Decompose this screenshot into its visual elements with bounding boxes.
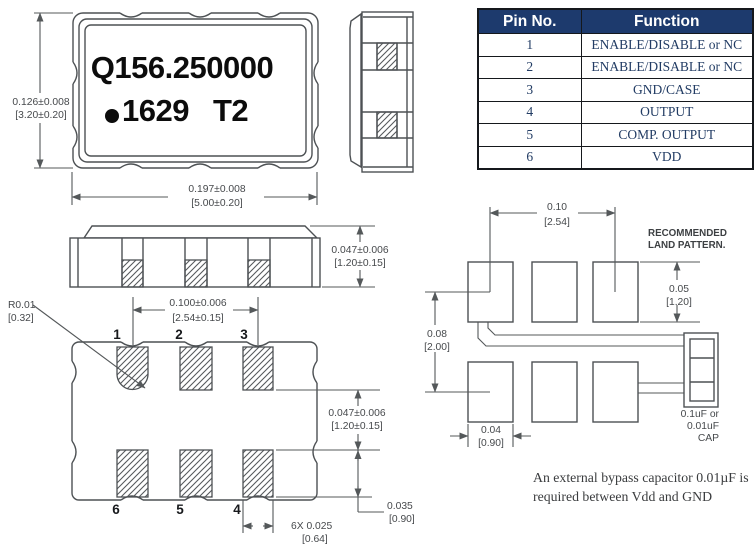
pin-label-6: 6 xyxy=(112,502,120,517)
function-cell: ENABLE/DISABLE or NC xyxy=(581,34,753,57)
pad-height-dim-in: 0.035 xyxy=(387,501,413,512)
table-header-row: Pin No. Function xyxy=(478,9,753,34)
pad-2 xyxy=(180,347,212,390)
top-view-height-dim-in: 0.126±0.008 xyxy=(12,97,69,108)
pin-cell: 1 xyxy=(478,34,581,57)
table-row: 6 VDD xyxy=(478,146,753,169)
pad-4 xyxy=(243,450,273,497)
function-header: Function xyxy=(581,9,753,34)
bottom-view: 1 2 3 6 5 4 R0.01 [0.32] 0.100±0.006 [2.… xyxy=(8,297,415,545)
cap-label-line3: CAP xyxy=(698,433,719,444)
function-cell: ENABLE/DISABLE or NC xyxy=(581,56,753,79)
pin1-indicator-dot xyxy=(105,109,119,123)
pin-label-1: 1 xyxy=(113,327,121,342)
table-row: 2 ENABLE/DISABLE or NC xyxy=(478,56,753,79)
pad-pitch-dim-in: 0.100±0.006 xyxy=(169,298,226,309)
pin-cell: 5 xyxy=(478,124,581,147)
land-row-gap-dim-mm: [2.00] xyxy=(424,342,450,353)
pad-pitch-dim-mm: [2.54±0.15] xyxy=(172,313,224,324)
row-gap-dim-in: 0.047±0.006 xyxy=(328,408,385,419)
front-pad-hatch xyxy=(248,260,270,287)
land-pad xyxy=(593,362,638,422)
pad-height-dim-mm: [0.90] xyxy=(389,514,415,525)
front-view: 0.047±0.006 [1.20±0.15] xyxy=(70,226,389,287)
function-cell: GND/CASE xyxy=(581,79,753,102)
pin-cell: 3 xyxy=(478,79,581,102)
note-line1: An external bypass capacitor 0.01µF is xyxy=(533,470,749,485)
land-pad-width-dim-in: 0.04 xyxy=(481,425,501,436)
cap-label-line1: 0.1uF or xyxy=(681,409,720,420)
top-view-width-dim-mm: [5.00±0.20] xyxy=(191,198,243,209)
bypass-cap-body xyxy=(690,339,714,401)
pad-width-dim-mm: [0.64] xyxy=(302,534,328,545)
marking-rev: T2 xyxy=(213,93,248,128)
land-pad-height-dim-mm: [1.20] xyxy=(666,297,692,308)
pin-label-5: 5 xyxy=(176,502,184,517)
side-view xyxy=(350,12,413,172)
land-pad xyxy=(532,262,577,322)
land-pad-width-dim-mm: [0.90] xyxy=(478,438,504,449)
land-pad-height-dim-in: 0.05 xyxy=(669,284,689,295)
top-view: Q156.250000 1629 T2 0.126±0.008 [3.20±0.… xyxy=(12,11,320,209)
front-view-thickness-dim-mm: [1.20±0.15] xyxy=(334,258,386,269)
function-cell: VDD xyxy=(581,146,753,169)
pad-5 xyxy=(180,450,212,497)
pad-1 xyxy=(117,347,148,389)
land-row-gap-dim-in: 0.08 xyxy=(427,329,447,340)
pad-3 xyxy=(243,347,273,390)
pad-width-dim-in: 6X 0.025 xyxy=(291,521,332,532)
land-pitch-dim-mm: [2.54] xyxy=(544,217,570,228)
pin-cell: 6 xyxy=(478,146,581,169)
note-line2: required between Vdd and GND xyxy=(533,489,712,504)
datasheet-mechanical-drawing-page: Q156.250000 1629 T2 0.126±0.008 [3.20±0.… xyxy=(0,0,754,554)
pin-label-3: 3 xyxy=(240,327,248,342)
table-row: 4 OUTPUT xyxy=(478,101,753,124)
table-row: 1 ENABLE/DISABLE or NC xyxy=(478,34,753,57)
pin-label-2: 2 xyxy=(175,327,183,342)
land-pattern-title-line1: RECOMMENDED xyxy=(648,228,727,239)
pin-label-4: 4 xyxy=(233,502,241,517)
top-view-width-dim-in: 0.197±0.008 xyxy=(188,184,245,195)
pin-cell: 2 xyxy=(478,56,581,79)
land-pitch-dim-in: 0.10 xyxy=(547,202,567,213)
cap-label-line2: 0.01uF xyxy=(687,421,719,432)
row-gap-dim-mm: [1.20±0.15] xyxy=(331,421,383,432)
table-row: 5 COMP. OUTPUT xyxy=(478,124,753,147)
front-pad-hatch xyxy=(122,260,143,287)
marking-frequency: Q156.250000 xyxy=(91,50,273,85)
top-view-height-dim-mm: [3.20±0.20] xyxy=(15,110,67,121)
land-pattern: 0.10 [2.54] 0.05 [1.20] 0.08 [2.00] 0.04… xyxy=(424,202,727,449)
function-cell: COMP. OUTPUT xyxy=(581,124,753,147)
corner-radius-dim-in: R0.01 xyxy=(8,300,36,311)
marking-datecode: 1629 xyxy=(122,93,189,128)
side-pad-hatch xyxy=(377,112,397,138)
side-pad-hatch xyxy=(377,43,397,70)
pin-cell: 4 xyxy=(478,101,581,124)
land-pad xyxy=(532,362,577,422)
pin-function-table: Pin No. Function 1 ENABLE/DISABLE or NC … xyxy=(477,8,754,170)
table-row: 3 GND/CASE xyxy=(478,79,753,102)
pad-6 xyxy=(117,450,148,497)
corner-radius-dim-mm: [0.32] xyxy=(8,313,34,324)
function-cell: OUTPUT xyxy=(581,101,753,124)
pin-no-header: Pin No. xyxy=(478,9,581,34)
bypass-capacitor-note: An external bypass capacitor 0.01µF is r… xyxy=(533,468,754,507)
front-view-thickness-dim-in: 0.047±0.006 xyxy=(331,245,388,256)
front-pad-hatch xyxy=(185,260,207,287)
land-pattern-title-line2: LAND PATTERN. xyxy=(648,240,726,251)
